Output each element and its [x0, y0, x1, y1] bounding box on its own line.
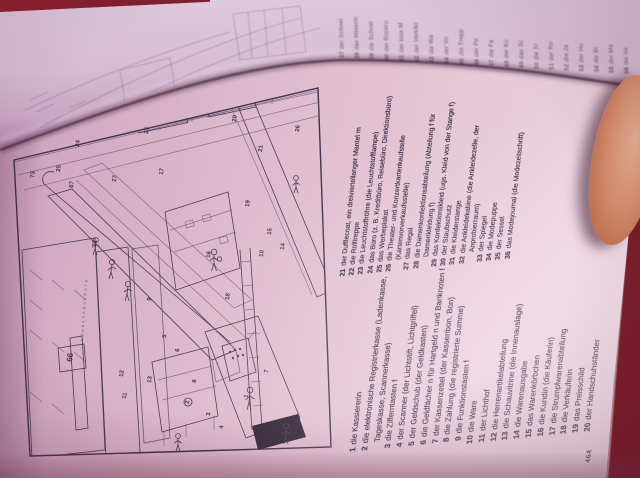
vocab-item: 17die Strumpfwarenabteilung — [546, 216, 582, 441]
facing-item-text: die Trepp — [459, 29, 466, 56]
facing-item-number: 52 — [564, 64, 570, 71]
vocab-item-text: der Kassenzettel (der Kassenbon, Bon) — [431, 297, 455, 437]
vocab-item-number: 31 — [448, 257, 458, 269]
facing-item-text: der Pe — [474, 38, 481, 57]
vocab-item-number: 18 — [557, 425, 570, 440]
vocab-item-text: die Herrenartikelabteilung — [490, 339, 509, 431]
vocab-item: 5der Geldschub (der Geldkasten) — [405, 231, 441, 456]
plate-label-21: 21 — [258, 144, 265, 152]
facing-item-text: die Schnei — [369, 21, 376, 51]
vocab-item-text: die Verkäuferin — [560, 369, 575, 423]
vocab-item-text: das Preisschild — [572, 367, 587, 421]
facing-item-number: 47 — [489, 59, 495, 66]
plate-label-2: 2 — [185, 400, 191, 405]
vocab-item-number: 28 — [411, 260, 421, 272]
vocab-item: 8die Zahlung (die registrierte Summe) — [440, 227, 476, 452]
vocab-item-text: die Modepuppe — [487, 202, 499, 251]
facing-item-number: 38 — [355, 52, 361, 59]
facing-item-number: 51 — [549, 63, 555, 70]
photo-of-open-dictionary: 37der Schnei 38das Meterm 39die Schnei 4… — [0, 0, 640, 478]
vocab-item-text: die Kundin (die Käuferin) — [537, 337, 556, 425]
plate-label-19: 19 — [245, 199, 252, 207]
vocab-item: 29das Konfektionskleid (ugs. Kleid von d… — [430, 85, 460, 270]
facing-item-text: der Ro — [549, 42, 556, 62]
facing-item-number: 50 — [534, 62, 540, 69]
vocab-item-text: die Zahlung (die registrierte Summe) — [443, 305, 466, 435]
plate-frame — [14, 88, 331, 456]
vocab-item-number: 15 — [522, 428, 535, 443]
facing-item-text: die Fa — [489, 40, 496, 58]
vocab-item-text: das Regal — [405, 227, 415, 259]
facing-vocab-fragment: 39die Schnei — [364, 0, 381, 60]
vocab-item-number: 13 — [499, 431, 512, 446]
vocab-item-number: 9 — [452, 436, 465, 451]
facing-item-number: 48 — [504, 60, 510, 67]
facing-item-text: das Sc — [519, 40, 526, 60]
vocab-item-number: 26 — [384, 263, 394, 275]
vocab-item-text: die Leuchtstoffröhre (die Leuchtstofflam… — [359, 131, 381, 264]
vocab-item: 36das Modejournal (die Modezeitschrift) — [503, 78, 533, 263]
facing-item-text: der Verkäu — [414, 22, 421, 53]
vocab-item-text: die Rolltreppe — [350, 221, 362, 265]
facing-item-text: die St — [534, 43, 540, 60]
vocab-item-text: die Kleiderstange — [450, 200, 463, 255]
vocab-item-number: 11 — [475, 433, 488, 448]
vocab-item-text: der Dufflecoat, ein dreiviertellanger Ma… — [341, 127, 363, 266]
plate-label-18: 18 — [225, 292, 232, 300]
vocab-item-number: 14 — [510, 430, 523, 445]
vocab-item-number: 36 — [503, 251, 513, 263]
facing-item-text: der Ku — [504, 39, 511, 58]
vocab-item-text: der Geldschub (der Geldkasten) — [408, 325, 429, 439]
vocab-item-text: das Werbeplakat — [377, 209, 390, 262]
vocab-item-number: 10 — [463, 434, 476, 449]
vocab-item: 26die Theater- und Konzertkartenkaufstel… — [384, 89, 423, 275]
facing-vocab-fragment: 42der Verkäu — [408, 0, 425, 63]
facing-item-number: 56 — [624, 67, 630, 74]
bottom-page-shadow — [0, 452, 640, 478]
vocab-item: 3die Zifferntasten f — [381, 233, 417, 458]
plate-label-67: 67 — [69, 180, 76, 188]
plate-label-22: 22 — [92, 239, 99, 247]
plate-label-12: 12 — [119, 369, 126, 377]
vocab-item: 32die Ankleidekabine (die Ankleidezelle,… — [457, 82, 496, 268]
vocab-item-text: das Warenkörbchen — [525, 355, 542, 427]
vocab-item: 33der Spiegel — [475, 81, 505, 266]
vocab-item-number: 8 — [440, 437, 453, 452]
vocab-column-1: 1die Kassiererin 2die elektronische Regi… — [346, 212, 617, 462]
vocab-item: 27das Regal — [402, 88, 432, 273]
plate-label-16: 16 — [206, 250, 213, 258]
vocab-item-text: der Spiegel — [478, 216, 489, 252]
vocab-item: 25das Werbeplakat — [375, 91, 405, 276]
plate-label-6: 6 — [175, 348, 181, 353]
plate-label-25: 25 — [56, 164, 63, 172]
facing-item-number: 45 — [460, 58, 466, 65]
plate-label-27: 27 — [112, 174, 119, 182]
facing-vocab-fragment: 38das Meterm — [349, 0, 366, 60]
vocab-item-text: die Warenausgabe — [513, 360, 529, 427]
vocab-item: 19das Preisschild — [569, 214, 605, 439]
vocab-item-text: die Damenkonfektionsabteilung (Abteilung… — [414, 113, 437, 258]
vocab-item: 6die Geldfächer n für Hartgeld n und Ban… — [416, 230, 452, 455]
vocab-item-number: 35 — [494, 252, 504, 264]
facing-item-number: 43 — [430, 56, 436, 63]
facing-vocab-fragment: 41der lose M — [393, 0, 410, 62]
facing-item-number: 39 — [370, 53, 376, 60]
plate-label-24: 24 — [75, 139, 82, 147]
vocab-item: 14die Warenausgabe — [510, 220, 546, 445]
plate-label-4: 4 — [219, 425, 225, 430]
plate-label-66: 66 — [65, 352, 75, 362]
facing-item-text: der Hu — [579, 43, 586, 63]
vocab-item-number: 21 — [338, 268, 348, 280]
plate-label-10: 10 — [259, 249, 266, 257]
vocab-item: 10die Ware — [463, 225, 499, 450]
facing-item-text: der Schnei — [339, 18, 346, 49]
plate-label-13: 13 — [147, 375, 154, 383]
vocab-item: 9die Funktionstasten f — [452, 226, 488, 451]
facing-item-text: die Ja — [564, 44, 571, 62]
vocab-item: 22die Rolltreppe — [347, 94, 377, 279]
vocab-item: 18die Verkäuferin — [557, 215, 593, 440]
facing-item-number: 41 — [400, 54, 406, 61]
facing-item-text: der Ma — [609, 44, 616, 64]
plate-label-14: 14 — [280, 242, 287, 250]
vocab-item: 30der Staubschutz — [439, 85, 469, 270]
vocab-item-number: 12 — [487, 432, 500, 447]
vocab-item: 21der Dufflecoat, ein dreiviertellanger … — [338, 95, 368, 280]
plate-label-20: 20 — [232, 114, 239, 122]
vocab-item-number: 20 — [581, 422, 594, 437]
facing-item-text: die Bl — [594, 47, 600, 64]
plate-label-15: 15 — [267, 227, 274, 235]
facing-item-text: der lose M — [399, 22, 406, 52]
vocab-item-text: der Handschuhständer — [584, 339, 602, 420]
facing-item-number: 42 — [415, 55, 421, 62]
vocab-item-number: 16 — [534, 427, 547, 442]
special-offers-banner: SONDERANGEBOTE — [80, 277, 88, 341]
plate-label-73: 73 — [30, 170, 37, 178]
facing-item-text: die Wa — [429, 34, 436, 54]
vocab-item: 34die Modepuppe — [485, 80, 515, 265]
plate-label-1: 1 — [244, 394, 250, 399]
plate-label-17: 17 — [159, 167, 166, 175]
facing-vocab-fragment: 40der Rockru — [379, 0, 396, 61]
vocab-item-text: der Lichthof — [478, 389, 492, 432]
vocab-item-number: 27 — [402, 261, 412, 273]
facing-vocab-fragment: 37der Schnei — [334, 0, 351, 59]
vocab-item: 11der Lichthof — [475, 223, 511, 448]
facing-item-number: 40 — [385, 54, 391, 61]
vocab-item: 16die Kundin (die Käuferin) — [534, 217, 570, 442]
vocab-item: 15das Warenkörbchen — [522, 219, 558, 444]
vocab-item-text: die Geldfächer n für Hartgeld n und Bank… — [419, 268, 447, 438]
facing-item-text: der Vo — [444, 36, 451, 55]
vocab-item-text: das Büro (z. B. Kreditbüro, Reisebüro, D… — [368, 96, 393, 263]
vocab-item-text: die Strumpfwarenabteilung — [548, 328, 567, 424]
vocab-item: 28die Damenkonfektionsabteilung (Abteilu… — [411, 86, 450, 272]
vocab-item-text: der Staubschutz — [441, 204, 454, 255]
vocab-item-number: 22 — [347, 267, 357, 279]
vocab-item-text: die Funktionstasten f — [455, 360, 472, 434]
facing-item-number: 44 — [445, 57, 451, 64]
plate-number-labels: 7325246727172322202119261514101618661213… — [30, 114, 302, 429]
vocab-item-text: die Ankleidekabine (die Ankleidezelle, d… — [460, 125, 481, 254]
vocab-item-text: das Modejournal (die Modezeitschrift) — [505, 132, 525, 249]
vocab-item-text: der Sessel — [496, 216, 507, 250]
plate-line-art: SONDERANGEBOTE — [14, 89, 333, 458]
vocab-item-number: 29 — [430, 258, 440, 270]
vocab-item: 7der Kassenzettel (der Kassenbon, Bon) — [428, 228, 464, 453]
vocab-column-2: 21der Dufflecoat, ein dreiviertellanger … — [338, 78, 532, 280]
facing-vocab-fragment: 56die Ve — [618, 0, 635, 75]
plate-label-11: 11 — [122, 392, 129, 400]
vocab-item: 23die Leuchtstoffröhre (die Leuchtstoffl… — [356, 93, 386, 278]
facing-item-number: 53 — [579, 64, 585, 71]
facing-item-number: 55 — [609, 66, 615, 73]
vocab-item-text: die Kassiererin — [349, 391, 364, 445]
facing-item-number: 49 — [519, 61, 525, 68]
vocab-item-text: die Theater- und Konzertkartenkaufstelle… — [386, 135, 411, 261]
vocab-item-text: die Schauvitrine (die Innenauslage) — [501, 303, 524, 429]
vocab-item-number: 17 — [546, 426, 559, 441]
plate-label-9: 9 — [147, 297, 153, 302]
facing-item-text: der Rockru — [384, 20, 391, 52]
facing-item-text: das Meterm — [354, 16, 361, 50]
vocab-item-number: 24 — [365, 265, 375, 277]
vocab-item-text: die Ware — [466, 400, 478, 432]
vocab-item: 35der Sessel — [494, 79, 524, 264]
people-figures — [93, 176, 300, 451]
facing-item-text: die Ve — [624, 47, 631, 65]
plate-label-3: 3 — [206, 412, 212, 417]
vocab-item-text: das Konfektionskleid (ugs. Kleid von der… — [432, 102, 456, 257]
facing-item-number: 37 — [340, 51, 346, 58]
vocab-item-number: 33 — [475, 254, 485, 266]
vocab-item: 20der Handschuhständer — [581, 212, 617, 437]
vocab-item: 13die Schauvitrine (die Innenauslage) — [499, 221, 535, 446]
vocab-item: 12die Herrenartikelabteilung — [487, 222, 523, 447]
vocab-item-number: 19 — [569, 423, 582, 438]
facing-item-number: 46 — [475, 59, 481, 66]
vocab-item: 31die Kleiderstange — [448, 84, 478, 269]
vocab-item: 4der Scanner (der Lichtstift, Lichtgriff… — [393, 232, 429, 457]
plate-label-7: 7 — [264, 369, 270, 374]
vocab-item-text: der Scanner (der Lichtstift, Lichtgriffe… — [396, 305, 420, 440]
plate-label-23: 23 — [144, 126, 151, 134]
plate-label-26: 26 — [295, 124, 302, 132]
vocab-item: 1die Kassiererin — [346, 237, 382, 462]
vocab-item-number: 30 — [439, 257, 449, 269]
vocab-item-number: 32 — [457, 256, 467, 268]
vocab-item-number: 34 — [485, 253, 495, 265]
vocab-item-text: die Zifferntasten f — [384, 379, 400, 441]
vocab-item-number: 23 — [356, 266, 366, 278]
vocab-item: 24das Büro (z. B. Kreditbüro, Reisebüro,… — [365, 92, 395, 277]
facing-item-number: 54 — [594, 65, 600, 72]
plate-label-5: 5 — [162, 334, 168, 339]
vocab-item-number: 25 — [375, 264, 385, 276]
vocab-item-text: die elektronische Registrierkasse (Laden… — [361, 276, 393, 444]
plate-label-8: 8 — [192, 379, 198, 384]
vocab-item: 2die elektronische Registrierkasse (Lade… — [358, 235, 406, 461]
